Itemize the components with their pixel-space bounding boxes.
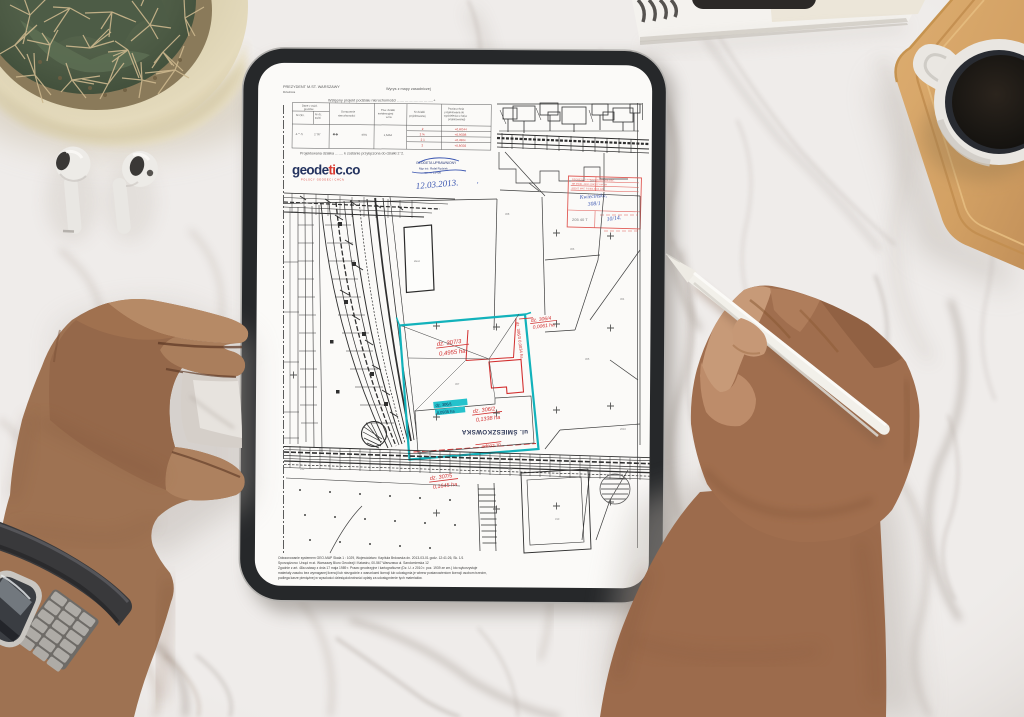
svg-text:307: 307 (455, 382, 460, 386)
svg-text:POLSCY GEODECI CHCĄ: POLSCY GEODECI CHCĄ (301, 179, 344, 182)
svg-text:2 '05': 2 '05' (314, 132, 321, 136)
svg-text:1,5464: 1,5464 (384, 133, 393, 137)
svg-text:65%: 65% (362, 133, 368, 137)
svg-text:Sporządzono: Urząd m.st. Warsz: Sporządzono: Urząd m.st. Warszawy Biuro … (278, 561, 429, 565)
svg-text:Pow. działki: Pow. działki (381, 108, 395, 112)
svg-text:Wyrys z mapy zasadniczej: Wyrys z mapy zasadniczej (386, 87, 431, 91)
svg-text:nieruchomości: nieruchomości (338, 113, 356, 117)
svg-text:Dzielnica: Dzielnica (283, 90, 296, 94)
svg-text:projektowanej: projektowanej (409, 114, 426, 118)
svg-text:305: 305 (585, 357, 590, 361)
svg-text:308: 308 (505, 212, 510, 216)
svg-text:Nr Obr.: Nr Obr. (296, 113, 305, 117)
svg-text:ewid.: ewid. (315, 116, 322, 120)
svg-text:Odwzorowanie systemem GEO-MAP: Odwzorowanie systemem GEO-MAP Skala 1 : … (278, 556, 464, 560)
svg-text:2 1: 2 1 (421, 138, 426, 142)
svg-text:309: 309 (508, 467, 513, 471)
svg-text:+0,9G08: +0,9G08 (455, 133, 467, 137)
svg-text:Nr działki: Nr działki (414, 110, 425, 114)
svg-text:306: 306 (570, 247, 575, 251)
svg-text:Nr dz.: Nr dz. (315, 112, 322, 116)
svg-text:ewidencyjnej: ewidencyjnej (378, 111, 394, 115)
svg-text:materiały zasobu bez wymaganej: materiały zasobu bez wymaganej licencji … (278, 571, 487, 575)
svg-text:ul. ŚMIESZKOWSKA: ul. ŚMIESZKOWSKA (461, 428, 528, 435)
svg-text:+0,RG44: +0,RG44 (455, 127, 467, 131)
svg-text:Zgodnie z art. 48a ustawy z dn: Zgodnie z art. 48a ustawy z dnia 17 maja… (278, 566, 478, 570)
svg-text:312: 312 (300, 467, 305, 471)
svg-text:w ha: w ha (386, 115, 392, 119)
svg-text:2013: 2013 (590, 179, 596, 183)
svg-text:PREZYDENT M.ST. WARSZAWY: PREZYDENT M.ST. WARSZAWY (283, 85, 340, 89)
svg-text:projektowanej): projektowanej) (448, 117, 466, 121)
svg-text:gruntów: gruntów (304, 107, 314, 111)
svg-text:304: 304 (620, 297, 625, 301)
svg-text:310: 310 (555, 517, 560, 521)
svg-text:2010: 2010 (620, 427, 626, 431)
svg-text:Wstępny projekt podziału nieru: Wstępny projekt podziału nieruchomości …… (328, 99, 436, 103)
svg-text:geodetic.co: geodetic.co (292, 163, 360, 178)
svg-text:205 40 T: 205 40 T (572, 217, 588, 222)
svg-text:2est: 2est (414, 259, 420, 263)
svg-text:podlega karze pieniężnej w wys: podlega karze pieniężnej w wysokości dzi… (278, 576, 422, 580)
svg-text:Projektowana działka ……. k zo: Projektowana działka ……. k zostanie przy… (300, 152, 404, 156)
svg-text:+0,4964: +0,4964 (455, 138, 466, 142)
svg-text:4-""-'5: 4-""-'5 (296, 132, 304, 136)
svg-text:Oznaczenie: Oznaczenie (341, 110, 356, 114)
svg-text:GEODETA UPRAWNIONY: GEODETA UPRAWNIONY (416, 161, 457, 165)
svg-text:+0,8G02: +0,8G02 (455, 144, 467, 148)
svg-text:2 %: 2 % (420, 132, 426, 136)
svg-text:308/1: 308/1 (587, 201, 601, 208)
